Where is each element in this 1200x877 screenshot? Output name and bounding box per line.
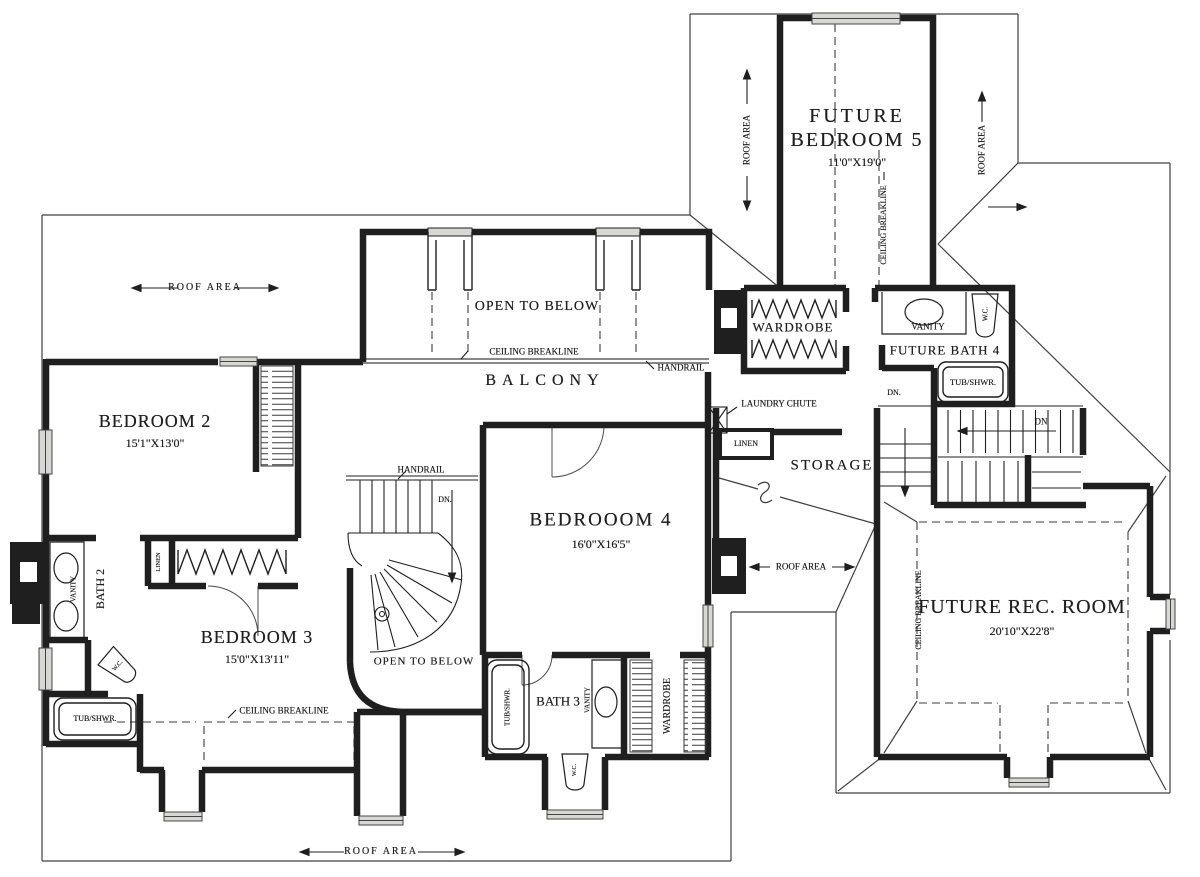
room-label-storage: STORAGE (791, 459, 874, 474)
section-break-icon (758, 482, 772, 502)
dim-label-future-rec-room: 20'10"X22'8" (990, 625, 1055, 637)
annotation-roof-area: ROOF AREA (743, 115, 752, 165)
label-leaders (228, 172, 884, 718)
rec-room-walls (878, 757, 1150, 778)
room-label-bath3: BATH 3 (536, 695, 580, 708)
annotation-vanity: VANITY (585, 687, 592, 713)
dim-label-future-bedroom5: 11'0"X19'0" (828, 156, 886, 168)
room-label-bedroom2: BEDROOM 2 (99, 412, 212, 430)
annotation-tub-shwr: TUB/SHWR. (73, 715, 116, 723)
room-label-linen-hall: LINEN (734, 440, 758, 448)
bath3-wardrobe-walls (483, 655, 709, 810)
room-label-future-bath4: FUTURE BATH 4 (890, 344, 1001, 357)
annotation-roof-area: ROOF AREA (776, 563, 826, 572)
annotation-wc: W.C. (572, 764, 578, 776)
annotation-vanity: VANITY (911, 323, 944, 332)
annotation-ceiling-breakline: CEILING BREAKLINE (880, 185, 888, 264)
dim-label-bedroom4: 16'0"X16'5" (572, 538, 631, 550)
curved-stair-wall (350, 568, 487, 712)
room-label-future-bedroom5-line1: FUTURE (809, 106, 905, 126)
annotation-open-to-below: OPEN TO BELOW (374, 657, 475, 668)
bath2-walls (46, 640, 140, 744)
balcony-columns (428, 228, 640, 290)
chimneys (10, 290, 746, 624)
annotation-dn: DN. (438, 496, 452, 504)
room-label-linen-bath2: LINEN (156, 552, 163, 572)
annotation-roof-area: ROOF AREA (168, 283, 242, 293)
annotation-wc: W.C. (983, 307, 990, 321)
second-floor-plan: FUTURE BEDROOM 5 11'0"X19'0" ROOF AREA R… (0, 0, 1200, 877)
chimney-icon (712, 538, 746, 594)
room-label-wardrobe-hall: WARDROBE (753, 321, 834, 334)
bedroom3-walls (140, 712, 487, 816)
room-label-balcony: BALCONY (485, 373, 604, 389)
room-label-bath2: BATH 2 (94, 569, 106, 609)
dim-label-bedroom2: 15'1"X13'0" (126, 437, 185, 449)
room-label-bedroom3: BEDROOM 3 (201, 628, 314, 646)
annotation-ceiling-breakline: CEILING BREAKLINE (239, 707, 328, 716)
annotation-handrail: HANDRAIL (398, 466, 445, 475)
room-label-future-bedroom5-line2: BEDROOM 5 (790, 130, 923, 150)
annotation-dn: DN. (887, 389, 901, 397)
annotation-open-to-below: OPEN TO BELOW (475, 300, 599, 314)
vanity-sink-icon (592, 660, 624, 748)
room-label-future-rec-room: FUTURE REC. ROOM (918, 597, 1126, 617)
annotation-handrail: HANDRAIL (658, 364, 705, 373)
vanity-sink-icon (50, 542, 84, 642)
chimney-icon (714, 290, 744, 354)
annotation-vanity: VANITY (71, 576, 78, 602)
annotation-roof-area: ROOF AREA (978, 125, 987, 175)
annotation-ceiling-breakline: CEILING BREAKLINE (489, 348, 578, 357)
future-bedroom5-walls (780, 18, 933, 288)
room-label-wardrobe-bath3: WARDROBE (663, 678, 673, 734)
roof-outline (42, 14, 1170, 861)
room-label-bedroom4: BEDROOOM 4 (530, 511, 673, 530)
stairs-curved (346, 476, 478, 652)
stairs-main (878, 406, 1083, 503)
annotation-laundry-chute: LAUNDRY CHUTE (741, 400, 816, 409)
annotation-tub-shwr: TUB/SHWR. (505, 688, 512, 726)
annotation-ceiling-breakline: CEILING BREAKLINE (915, 570, 923, 649)
annotation-dn: DN (1035, 418, 1048, 427)
annotation-tub-shwr: TUB/SHWR. (950, 378, 996, 387)
dim-label-bedroom3: 15'0"X13'11" (225, 653, 289, 665)
balcony-walls (363, 232, 709, 362)
annotation-roof-area: ROOF AREA (344, 847, 418, 857)
walls (46, 18, 1170, 816)
